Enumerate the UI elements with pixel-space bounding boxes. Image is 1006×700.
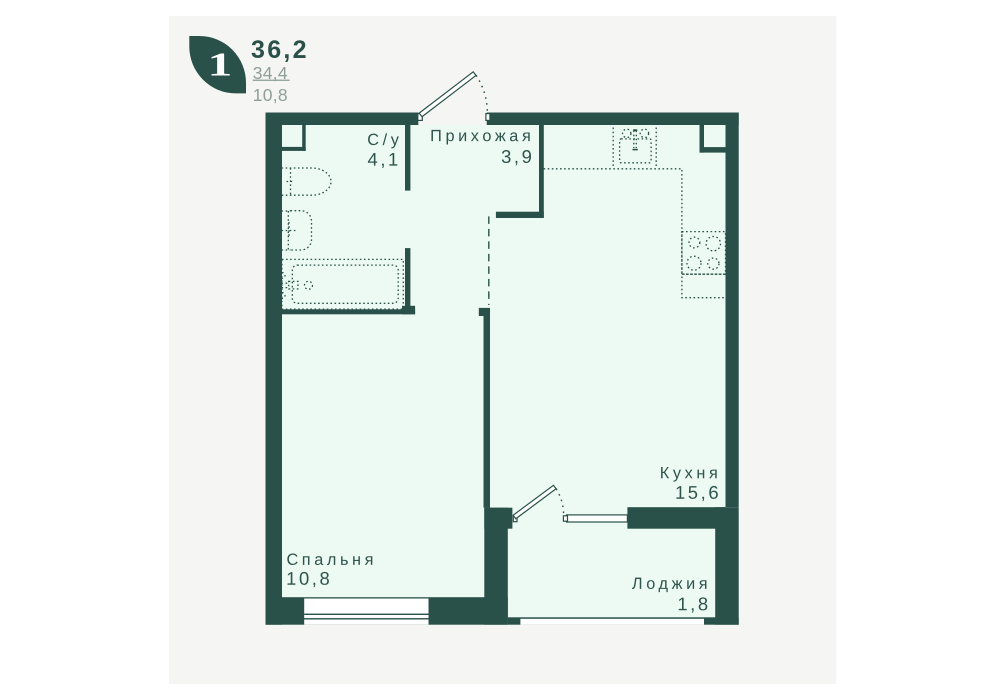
svg-text:С/у: С/у xyxy=(367,131,402,149)
svg-text:3,9: 3,9 xyxy=(501,146,534,167)
svg-text:1,8: 1,8 xyxy=(677,593,710,614)
svg-text:10,8: 10,8 xyxy=(253,85,288,105)
svg-text:36,2: 36,2 xyxy=(251,36,309,64)
svg-text:Прихожая: Прихожая xyxy=(430,127,534,145)
svg-text:Лоджия: Лоджия xyxy=(632,575,711,593)
svg-text:15,6: 15,6 xyxy=(675,482,721,503)
svg-text:4,1: 4,1 xyxy=(368,149,401,170)
svg-text:Кухня: Кухня xyxy=(660,464,722,482)
svg-text:1: 1 xyxy=(208,46,233,84)
svg-text:10,8: 10,8 xyxy=(286,568,332,589)
svg-text:Спальня: Спальня xyxy=(286,551,377,569)
